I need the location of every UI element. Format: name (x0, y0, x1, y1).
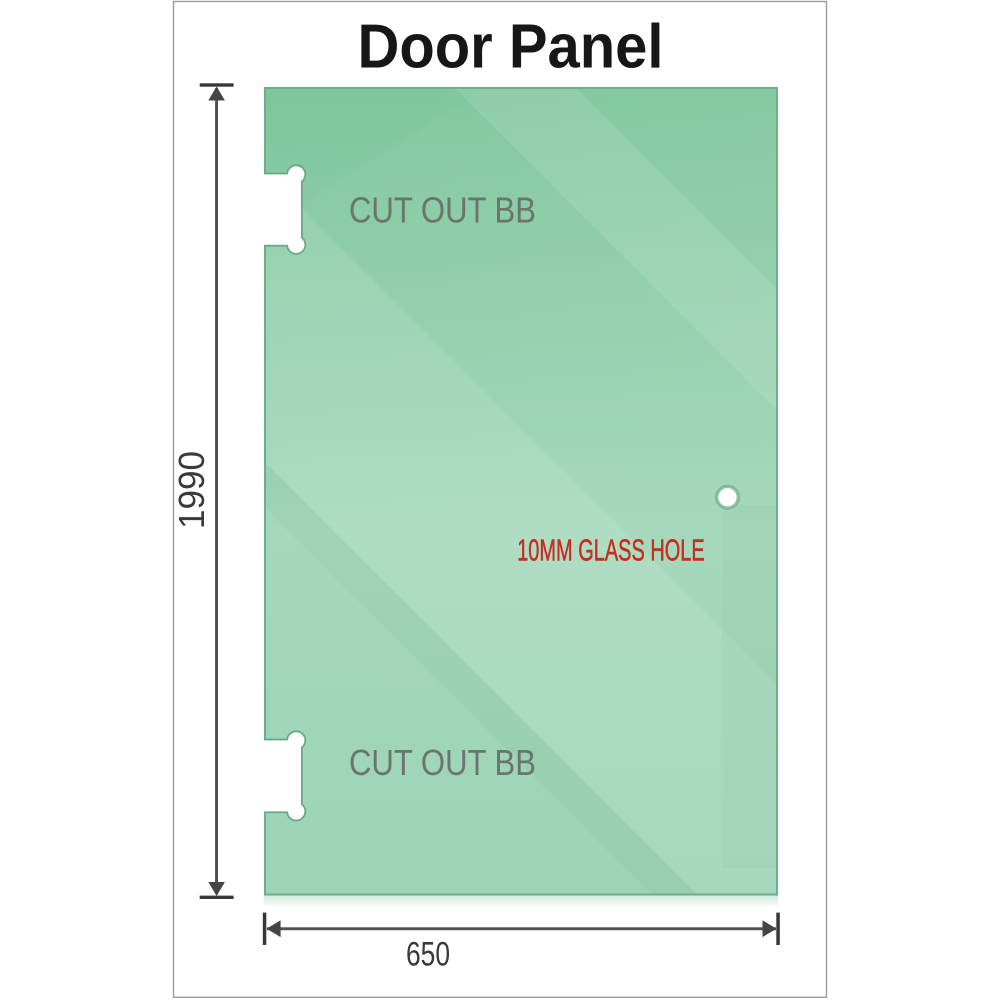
svg-text:650: 650 (406, 935, 450, 973)
svg-text:Door Panel: Door Panel (358, 12, 664, 82)
svg-text:CUT OUT BB: CUT OUT BB (349, 742, 536, 783)
svg-text:CUT OUT BB: CUT OUT BB (349, 190, 536, 231)
svg-text:10MM GLASS HOLE: 10MM GLASS HOLE (517, 534, 705, 568)
svg-text:1990: 1990 (171, 451, 212, 529)
